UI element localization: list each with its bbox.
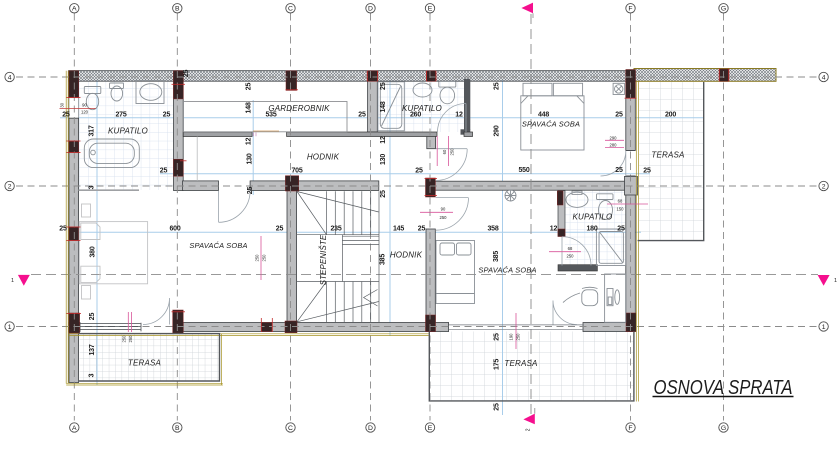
svg-text:30: 30 <box>60 102 65 107</box>
svg-text:250: 250 <box>128 335 133 343</box>
svg-text:12: 12 <box>380 136 387 144</box>
svg-text:C: C <box>288 425 293 432</box>
svg-text:G: G <box>721 6 726 13</box>
svg-text:4: 4 <box>822 74 826 81</box>
svg-text:4: 4 <box>8 74 12 81</box>
svg-text:25: 25 <box>59 226 67 233</box>
svg-text:175: 175 <box>494 359 501 370</box>
svg-text:OSNOVA SPRATA: OSNOVA SPRATA <box>654 376 793 399</box>
svg-text:120: 120 <box>81 109 89 114</box>
svg-text:148: 148 <box>245 102 252 113</box>
svg-text:1: 1 <box>834 278 837 284</box>
svg-text:250: 250 <box>262 254 267 262</box>
svg-text:68: 68 <box>618 199 623 204</box>
svg-text:358: 358 <box>487 226 498 233</box>
svg-text:250: 250 <box>121 335 126 343</box>
svg-text:90: 90 <box>441 207 446 212</box>
svg-text:25: 25 <box>247 187 254 195</box>
svg-text:TERASA: TERASA <box>651 151 684 160</box>
svg-text:1: 1 <box>822 324 826 331</box>
svg-text:HODNIK: HODNIK <box>307 153 340 162</box>
svg-text:250: 250 <box>255 254 260 262</box>
svg-text:25: 25 <box>160 168 168 175</box>
svg-text:290: 290 <box>494 125 501 136</box>
svg-text:180: 180 <box>586 226 597 233</box>
svg-text:150: 150 <box>617 206 625 211</box>
svg-text:G: G <box>721 425 726 432</box>
svg-text:TERASA: TERASA <box>504 359 537 368</box>
svg-text:2: 2 <box>526 428 532 431</box>
svg-text:TERASA: TERASA <box>128 359 161 368</box>
svg-text:600: 600 <box>169 226 180 233</box>
svg-text:3: 3 <box>89 185 96 189</box>
svg-text:12: 12 <box>550 226 558 233</box>
svg-text:145: 145 <box>393 226 404 233</box>
svg-text:235: 235 <box>330 226 341 233</box>
svg-text:25: 25 <box>615 167 623 174</box>
svg-text:25: 25 <box>380 190 387 198</box>
svg-text:25: 25 <box>62 112 70 119</box>
svg-text:1: 1 <box>11 278 14 284</box>
svg-text:F: F <box>628 6 632 13</box>
svg-text:137: 137 <box>89 344 96 355</box>
svg-text:GARDEROBNIK: GARDEROBNIK <box>268 104 330 113</box>
svg-text:148: 148 <box>380 101 387 112</box>
svg-text:SPAVAĆA SOBA: SPAVAĆA SOBA <box>522 120 580 129</box>
svg-text:290: 290 <box>610 136 618 141</box>
svg-text:2: 2 <box>822 183 826 190</box>
svg-text:C: C <box>288 6 293 13</box>
svg-text:25: 25 <box>380 82 387 90</box>
svg-text:A: A <box>72 6 77 13</box>
svg-text:D: D <box>368 6 373 13</box>
svg-text:25: 25 <box>183 70 190 78</box>
svg-text:385: 385 <box>493 251 500 262</box>
svg-text:25: 25 <box>494 403 501 411</box>
svg-text:448: 448 <box>538 112 549 119</box>
svg-text:317: 317 <box>89 125 96 136</box>
svg-text:25: 25 <box>89 313 96 321</box>
svg-text:2: 2 <box>8 183 12 190</box>
svg-text:275: 275 <box>115 112 126 119</box>
svg-text:380: 380 <box>90 246 97 257</box>
svg-text:B: B <box>175 425 180 432</box>
svg-text:KUPATILO: KUPATILO <box>573 213 613 222</box>
svg-text:F: F <box>628 425 632 432</box>
svg-text:190: 190 <box>509 333 514 341</box>
svg-text:68: 68 <box>568 246 573 251</box>
svg-text:SPAVAĆA SOBA: SPAVAĆA SOBA <box>189 241 247 250</box>
svg-text:25: 25 <box>358 112 366 119</box>
svg-text:B: B <box>175 6 180 13</box>
svg-text:E: E <box>428 425 433 432</box>
svg-text:25: 25 <box>163 112 171 119</box>
svg-text:130: 130 <box>380 154 387 165</box>
svg-text:250: 250 <box>450 148 455 156</box>
svg-text:HODNIK: HODNIK <box>390 251 423 260</box>
svg-text:130: 130 <box>246 153 253 164</box>
svg-text:D: D <box>368 425 373 432</box>
svg-text:SPAVAĆA SOBA: SPAVAĆA SOBA <box>478 266 536 275</box>
svg-text:25: 25 <box>617 226 625 233</box>
svg-text:25: 25 <box>276 226 284 233</box>
svg-text:STEPENIŠTE: STEPENIŠTE <box>319 234 328 285</box>
svg-text:25: 25 <box>494 333 501 341</box>
svg-text:250: 250 <box>567 253 575 258</box>
svg-text:25: 25 <box>415 168 423 175</box>
svg-text:250: 250 <box>516 333 521 341</box>
svg-text:90: 90 <box>82 103 87 108</box>
svg-text:25: 25 <box>246 83 253 91</box>
svg-text:12: 12 <box>245 137 252 145</box>
svg-text:550: 550 <box>518 167 529 174</box>
svg-text:25: 25 <box>643 168 651 175</box>
svg-text:60: 60 <box>442 149 447 154</box>
svg-text:25: 25 <box>418 226 426 233</box>
svg-text:250: 250 <box>440 215 448 220</box>
svg-text:705: 705 <box>291 168 302 175</box>
svg-text:280: 280 <box>610 143 618 148</box>
svg-text:200: 200 <box>665 112 676 119</box>
svg-text:3: 3 <box>89 373 96 377</box>
svg-text:A: A <box>72 425 77 432</box>
svg-text:1: 1 <box>8 324 12 331</box>
svg-text:25: 25 <box>615 112 623 119</box>
svg-text:KUPATILO: KUPATILO <box>108 127 148 136</box>
svg-text:25: 25 <box>494 82 501 90</box>
svg-text:E: E <box>428 6 433 13</box>
svg-text:385: 385 <box>380 254 387 265</box>
svg-text:KUPATILO: KUPATILO <box>402 104 442 113</box>
svg-text:12: 12 <box>455 112 463 119</box>
